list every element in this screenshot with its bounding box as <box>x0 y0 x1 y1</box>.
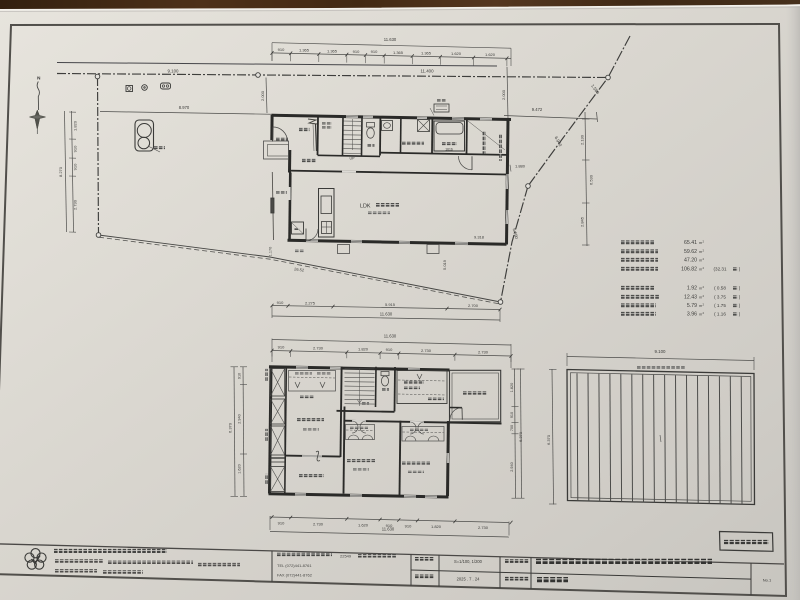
svg-text:11.630: 11.630 <box>380 312 393 317</box>
svg-text:1.620: 1.620 <box>451 51 462 56</box>
svg-text:1.820: 1.820 <box>431 524 442 529</box>
svg-text:22549: 22549 <box>340 554 352 559</box>
svg-text:1.92: 1.92 <box>687 286 697 292</box>
svg-text:910: 910 <box>353 49 360 54</box>
svg-text:( 3.75: ( 3.75 <box>714 295 726 300</box>
svg-text:2.130: 2.130 <box>580 134 585 145</box>
svg-text:LDK: LDK <box>360 204 371 210</box>
svg-text:910: 910 <box>510 412 514 418</box>
svg-text:2025 . 7 . 24: 2025 . 7 . 24 <box>457 577 480 582</box>
svg-text:2.730: 2.730 <box>313 346 324 351</box>
svg-text:910: 910 <box>371 49 378 54</box>
svg-text:1.365: 1.365 <box>327 48 338 53</box>
svg-text:2.700: 2.700 <box>468 303 479 308</box>
svg-text:2.940: 2.940 <box>510 462 514 472</box>
svg-text:910: 910 <box>73 145 78 152</box>
svg-text:910: 910 <box>386 347 393 352</box>
svg-text:2.730: 2.730 <box>478 525 489 530</box>
svg-text:6.370: 6.370 <box>518 431 523 442</box>
svg-text:6.370: 6.370 <box>228 422 233 433</box>
svg-text:65.41: 65.41 <box>684 240 697 246</box>
svg-text:5.019: 5.019 <box>442 259 447 270</box>
svg-text:910: 910 <box>73 163 78 170</box>
svg-text:1.620: 1.620 <box>358 522 369 527</box>
svg-text:1.170: 1.170 <box>269 247 273 257</box>
svg-text:2.845: 2.845 <box>580 216 585 227</box>
svg-text:910: 910 <box>405 524 412 529</box>
svg-text:910: 910 <box>278 521 285 526</box>
svg-text:6.370: 6.370 <box>546 434 551 445</box>
svg-text:( 1.16: ( 1.16 <box>714 312 726 317</box>
svg-text:11.400: 11.400 <box>420 69 434 74</box>
svg-text:FAX (072)441-8762: FAX (072)441-8762 <box>277 573 313 578</box>
svg-text:( 0.58: ( 0.58 <box>714 286 726 291</box>
svg-text:UP: UP <box>350 157 356 161</box>
svg-text:1.880: 1.880 <box>515 164 526 169</box>
svg-text:1.620: 1.620 <box>485 52 496 57</box>
svg-text:S=1/100, 1/200: S=1/100, 1/200 <box>454 559 483 564</box>
svg-text:9.100: 9.100 <box>655 349 667 354</box>
svg-text:910: 910 <box>277 300 284 305</box>
svg-text:910: 910 <box>278 345 285 350</box>
svg-text:( 1.75: ( 1.75 <box>714 303 726 308</box>
svg-text:1616: 1616 <box>445 148 453 152</box>
svg-text:1.820: 1.820 <box>510 383 514 393</box>
svg-text:910: 910 <box>238 373 242 379</box>
svg-text:1.820: 1.820 <box>73 120 78 131</box>
svg-text:11.630: 11.630 <box>384 37 397 42</box>
svg-text:2.730: 2.730 <box>73 199 78 210</box>
svg-text:106.82: 106.82 <box>681 267 697 273</box>
svg-text:8.270: 8.270 <box>58 166 63 177</box>
svg-text:3.96: 3.96 <box>687 312 697 318</box>
svg-text:9.318: 9.318 <box>474 234 485 239</box>
svg-text:TEL (072)441-8761: TEL (072)441-8761 <box>277 563 312 568</box>
svg-text:1.365: 1.365 <box>393 50 404 55</box>
svg-text:2.730: 2.730 <box>313 521 324 526</box>
svg-text:2.000: 2.000 <box>501 89 506 100</box>
svg-text:2.000: 2.000 <box>260 90 265 101</box>
svg-text:2.730: 2.730 <box>478 349 489 354</box>
svg-text:1.365: 1.365 <box>421 50 432 55</box>
svg-text:9.472: 9.472 <box>532 107 543 112</box>
svg-text:9.100: 9.100 <box>168 69 180 74</box>
svg-text:910: 910 <box>278 47 285 52</box>
svg-text:59.62: 59.62 <box>684 249 697 255</box>
svg-text:1.365: 1.365 <box>299 48 310 53</box>
svg-text:8.970: 8.970 <box>179 105 190 110</box>
svg-text:2.730: 2.730 <box>421 348 432 353</box>
svg-text:1.620: 1.620 <box>238 464 242 474</box>
svg-text:2.275: 2.275 <box>305 300 316 305</box>
svg-text:5.915: 5.915 <box>385 302 396 307</box>
svg-text:47.20: 47.20 <box>684 258 697 264</box>
svg-text:6.530: 6.530 <box>589 174 594 185</box>
svg-text:2.940: 2.940 <box>238 414 242 424</box>
svg-text:11.630: 11.630 <box>384 334 397 339</box>
svg-text:1.820: 1.820 <box>358 347 369 352</box>
svg-text:700: 700 <box>510 425 514 431</box>
svg-text:5.79: 5.79 <box>687 303 697 309</box>
svg-text:(32.31: (32.31 <box>713 267 726 272</box>
svg-text:No.1: No.1 <box>763 578 772 583</box>
svg-text:11.630: 11.630 <box>382 527 395 532</box>
svg-text:12.43: 12.43 <box>684 295 697 301</box>
